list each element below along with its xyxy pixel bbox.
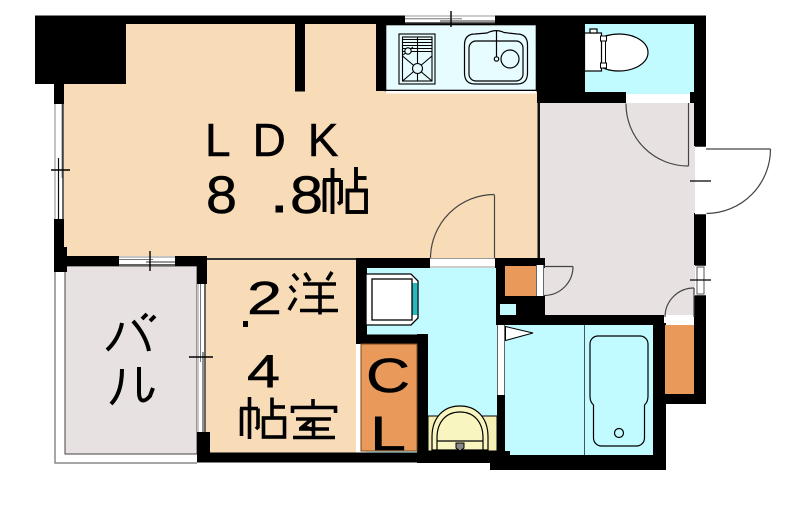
- svg-text:4: 4: [247, 345, 280, 397]
- svg-text:8: 8: [206, 166, 237, 225]
- svg-text:C: C: [366, 350, 410, 403]
- svg-text:L: L: [370, 408, 406, 461]
- svg-text:2: 2: [247, 272, 282, 324]
- svg-text:LDK: LDK: [205, 114, 360, 166]
- svg-text:8: 8: [290, 166, 323, 225]
